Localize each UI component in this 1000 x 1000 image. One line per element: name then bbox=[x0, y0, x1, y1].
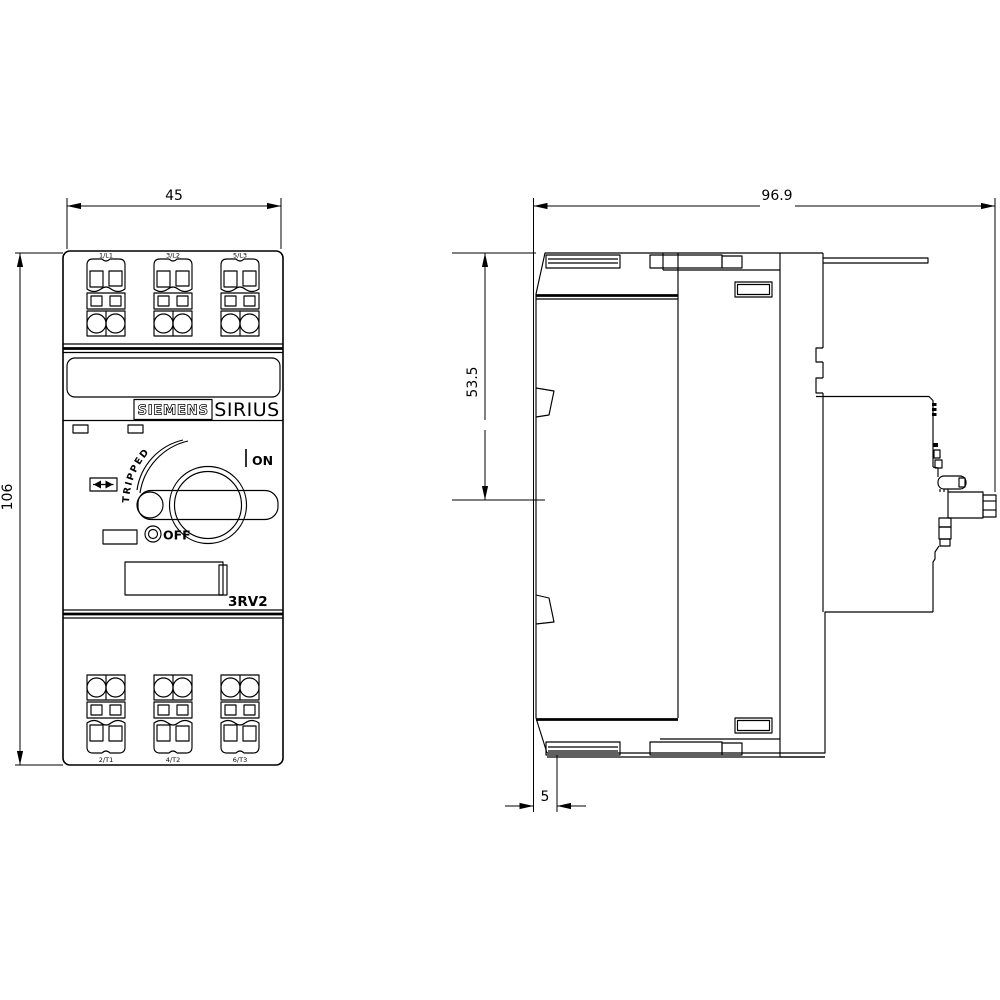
dim-value: 45 bbox=[165, 188, 183, 204]
drawing-canvas: 1/L1 3/L2 5/L3 SIEMENS SIRIUS bbox=[0, 0, 1000, 1000]
dim-value: 106 bbox=[0, 484, 16, 511]
terminal-label: 2/T1 bbox=[99, 756, 113, 764]
sirius-label: SIRIUS bbox=[214, 399, 279, 421]
off-label: OFF bbox=[163, 528, 191, 543]
siemens-logo: SIEMENS bbox=[137, 403, 208, 419]
technical-drawing: 1/L1 3/L2 5/L3 SIEMENS SIRIUS bbox=[0, 0, 1000, 1000]
on-label: ON bbox=[252, 453, 273, 468]
terminal-label: 5/L3 bbox=[233, 252, 247, 260]
terminal-label: 4/T2 bbox=[166, 756, 180, 764]
terminal-label: 6/T3 bbox=[233, 756, 247, 764]
dim-value: 96.9 bbox=[761, 188, 792, 204]
dim-value: 5 bbox=[541, 789, 550, 805]
model-label: 3RV2 bbox=[228, 594, 268, 610]
terminal-label: 3/L2 bbox=[166, 252, 180, 260]
terminal-label: 1/L1 bbox=[99, 252, 113, 260]
dim-value: 53.5 bbox=[465, 366, 481, 397]
